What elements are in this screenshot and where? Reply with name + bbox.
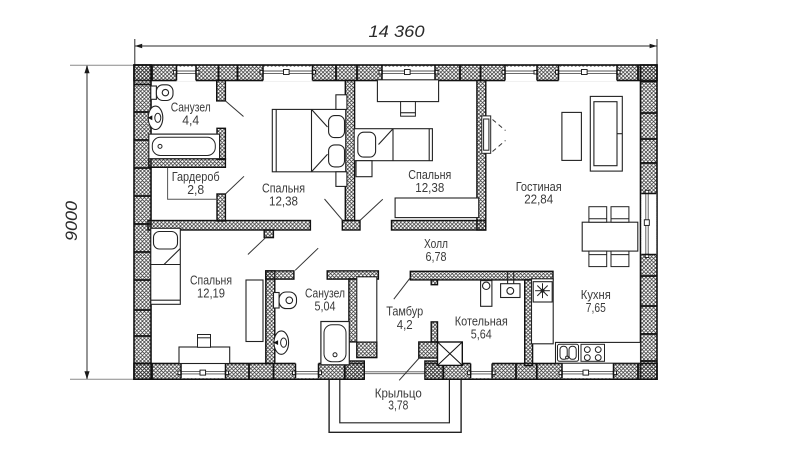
svg-text:Спальня: Спальня [190, 274, 232, 288]
svg-text:9000: 9000 [62, 200, 81, 241]
svg-text:4,4: 4,4 [182, 114, 199, 128]
svg-text:12,38: 12,38 [269, 195, 298, 209]
svg-text:7,65: 7,65 [586, 301, 606, 315]
svg-text:Санузел: Санузел [171, 101, 211, 115]
svg-text:6,78: 6,78 [426, 250, 447, 264]
svg-text:Спальня: Спальня [262, 182, 305, 196]
svg-text:5,04: 5,04 [315, 300, 336, 314]
svg-text:Гардероб: Гардероб [172, 170, 220, 184]
svg-text:3,78: 3,78 [388, 399, 408, 413]
svg-text:5,64: 5,64 [471, 328, 492, 342]
svg-text:Кухня: Кухня [581, 288, 611, 302]
svg-text:Холл: Холл [424, 237, 448, 251]
svg-text:12,19: 12,19 [197, 287, 225, 301]
svg-text:22,84: 22,84 [524, 193, 553, 207]
svg-text:Котельная: Котельная [455, 315, 508, 329]
svg-text:4,2: 4,2 [397, 318, 413, 332]
svg-text:14 360: 14 360 [369, 22, 426, 41]
svg-text:Спальня: Спальня [408, 168, 451, 182]
svg-text:Тамбур: Тамбур [386, 305, 423, 319]
svg-text:2,8: 2,8 [187, 183, 204, 197]
svg-text:12,38: 12,38 [415, 181, 444, 195]
svg-text:Санузел: Санузел [305, 287, 345, 301]
